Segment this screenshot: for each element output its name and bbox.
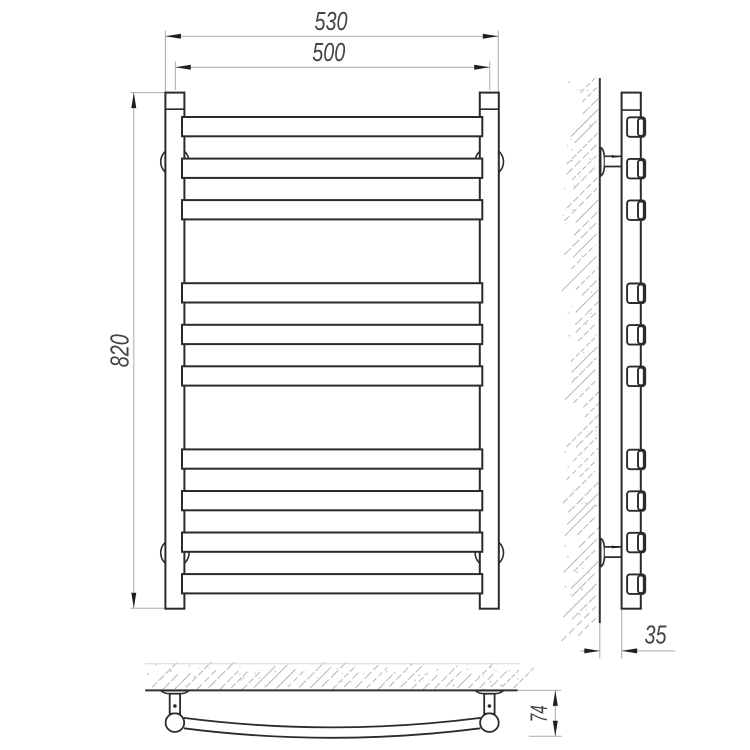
svg-text:74: 74 — [526, 705, 553, 722]
svg-text:500: 500 — [312, 39, 345, 67]
svg-text:820: 820 — [107, 334, 135, 367]
svg-text:35: 35 — [645, 622, 668, 650]
svg-text:530: 530 — [315, 8, 348, 36]
